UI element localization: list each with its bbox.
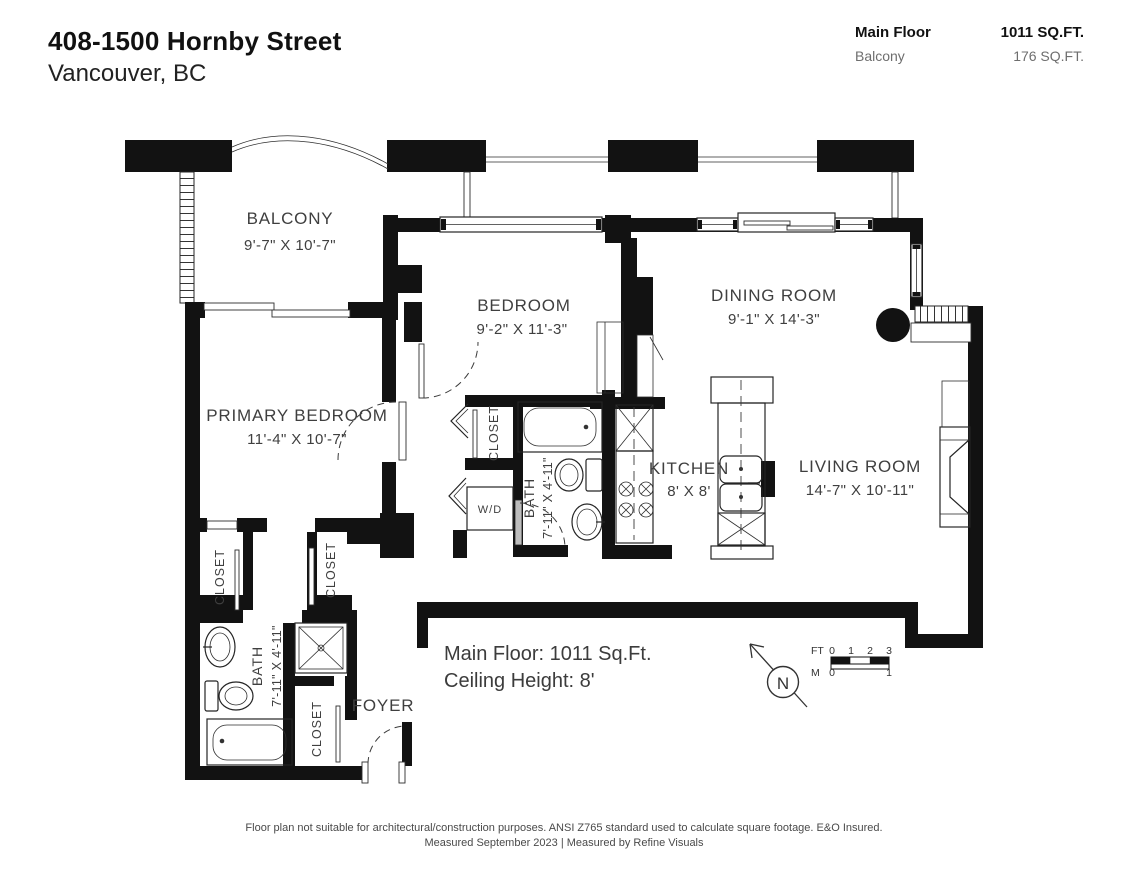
right-hatch-wall [915,306,968,322]
bath2-dims: 7'-11" X 4'-11" [270,625,284,707]
foyer-closet-rod [336,706,340,762]
dining-window-left [697,218,738,231]
fridge-icon [616,405,653,451]
foyer-closet-label: CLOSET [310,701,324,757]
primary-bedroom-dims: 11'-4" X 10'-7" [247,431,347,448]
dining-sliding-door [738,213,835,232]
toilet-icon [205,681,253,711]
entry-door [362,726,405,783]
bedroom-closet-rod [473,410,477,458]
closet2-door-leaf [309,548,314,605]
footer-disclaimer: Floor plan not suitable for architectura… [0,822,1128,834]
bedroom-closet-label: CLOSET [487,405,501,461]
primary-bedroom-label: PRIMARY BEDROOM [206,406,387,425]
svg-text:2: 2 [867,645,873,657]
primary-bedroom-sliding-door [204,303,350,317]
closet2-label: CLOSET [324,542,338,598]
balcony-dims: 9'-7" X 10'-7" [244,237,336,254]
sink-icon [572,504,605,540]
living-room-dims: 14'-7" X 10'-11" [806,482,914,499]
duct-chase [942,381,969,427]
dining-dims: 9'-1" X 14'-3" [728,311,820,328]
svg-text:0: 0 [829,645,835,657]
dining-label: DINING ROOM [711,286,837,305]
bathtub-icon [518,402,602,452]
north-arrow: N [750,644,807,707]
bath2-label: BATH [249,646,265,686]
bath-label: BATH [521,478,537,518]
pantry-door [637,335,663,397]
sink-icon [203,627,235,667]
kitchen-counter [616,451,653,543]
svg-text:1: 1 [886,667,892,679]
bathtub-icon [207,719,292,765]
foyer-label: FOYER [352,696,415,715]
bedroom-closet-bifold-icon [451,404,468,438]
balcony-railing [180,172,194,303]
round-column [876,308,910,342]
scale-bar: FT 0 1 2 3 M 0 1 [811,645,892,679]
kitchen-label: KITCHEN [649,459,729,478]
svg-text:3: 3 [886,645,892,657]
bedroom-door [419,342,478,398]
main-bath-fixtures [518,402,605,540]
svg-text:0: 0 [829,667,835,679]
north-letter: N [777,674,789,693]
closet1-sliding-panel [207,521,237,529]
stove-burners-icon [619,482,653,517]
kitchen-dims: 8' X 8' [667,483,711,500]
shower-icon [295,623,347,673]
top-pillars [125,136,914,218]
dishwasher-icon [718,513,765,545]
wd-label: W/D [478,504,502,516]
wd-closet-bifold-icon [449,478,466,514]
floorplan-page: 408-1500 Hornby Street Vancouver, BC Mai… [0,0,1128,872]
closet1-label: CLOSET [213,549,227,605]
bedroom-dims: 9'-2" X 11'-3" [477,321,568,338]
right-ledge [911,323,971,342]
ceiling-height-note: Ceiling Height: 8' [444,670,595,692]
balcony-label: BALCONY [247,209,334,228]
scale-ft-label: FT [811,645,824,657]
fireplace-bay [940,427,970,527]
svg-text:1: 1 [848,645,854,657]
bedroom-label: BEDROOM [477,296,570,315]
floor-annotations: Main Floor: 1011 Sq.Ft. Ceiling Height: … [444,643,652,692]
floor-area-note: Main Floor: 1011 Sq.Ft. [444,643,652,665]
bedroom-window [440,217,602,232]
scale-m-label: M [811,667,820,679]
dining-window-right [835,218,873,231]
dining-side-window [911,244,922,297]
floorplan-drawing: BALCONY 9'-7" X 10'-7" BEDROOM 9'-2" X 1… [0,0,1128,872]
footer-credit: Measured September 2023 | Measured by Re… [0,837,1128,849]
living-room-label: LIVING ROOM [799,457,921,476]
toilet-icon [555,459,602,491]
bedroom-builtin [597,322,623,393]
closet1-rod [235,550,239,610]
bath-dims: 7'-11" X 4'-11" [541,457,555,539]
